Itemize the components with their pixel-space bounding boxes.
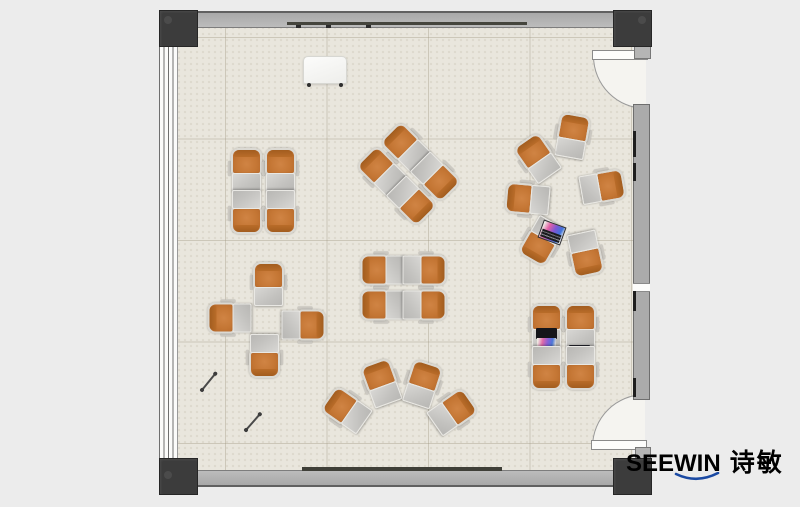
seewin-logo: SEEWIN 诗敏 [626,451,784,477]
marker-stick [245,413,260,430]
mobile-whiteboard [303,56,347,84]
logo-cjk-text: 诗敏 [730,451,784,476]
logo-swoosh-icon [674,472,720,482]
floor-plan: SEEWIN 诗敏 [0,0,800,507]
marker-stick [201,373,216,390]
laptop-icon [537,219,566,245]
objects-layer [0,0,800,507]
